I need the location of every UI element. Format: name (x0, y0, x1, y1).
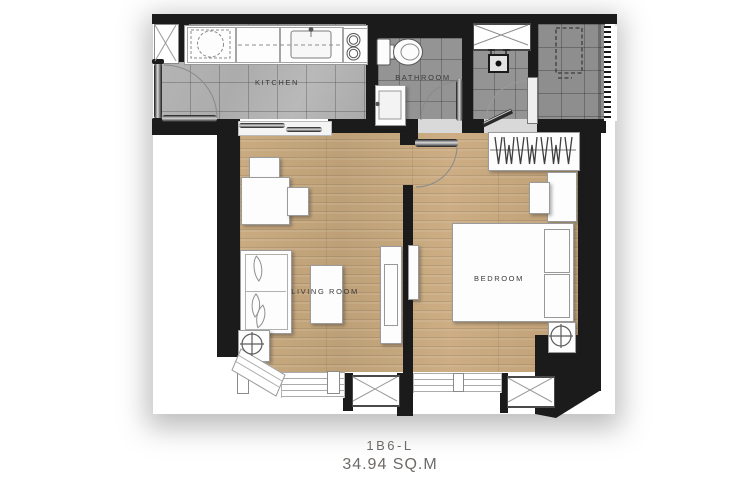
bedroom-chair (529, 182, 550, 214)
bedroom-wall-tv (408, 245, 419, 300)
title-block: 1B6-L 34.94 SQ.M (280, 438, 500, 474)
floor-plan: KITCHEN BATHROOM LIVING ROOM BEDROOM 1B6… (0, 0, 750, 500)
vanity-sink (375, 85, 406, 126)
bedroom-door-leaf (415, 139, 458, 147)
kitchen-sliding-door-panel-2 (286, 127, 322, 132)
pillow-top (544, 229, 570, 273)
ac-ledge-edge-line (598, 24, 601, 124)
living-window-unit (352, 375, 400, 407)
wall-bath-shower-divider (462, 24, 473, 121)
sofa-cushion-divider (245, 291, 286, 292)
stove (342, 28, 368, 63)
kitchen-sink-unit (280, 27, 344, 63)
shower-floor (473, 47, 528, 121)
kitchen-cabinet (236, 27, 280, 63)
living-tv (384, 264, 398, 326)
bathroom-door-threshold (418, 119, 462, 133)
wall-left (217, 131, 240, 357)
dining-table (241, 177, 290, 225)
bathroom-label: BATHROOM (383, 73, 463, 82)
pillow-bottom (544, 274, 570, 318)
ac-ledge-floor (538, 24, 605, 124)
dining-chair-right (287, 187, 309, 216)
bedroom-desk (547, 172, 577, 222)
bedroom-label: BEDROOM (459, 274, 539, 283)
wall-shower-bottom (462, 119, 484, 133)
bedroom-side-table (548, 322, 576, 353)
shower-window (473, 23, 531, 51)
unit-area: 34.94 SQ.M (280, 456, 500, 474)
entry-side-panel (154, 24, 179, 64)
bedroom-window-unit (507, 376, 555, 408)
entry-door-leaf (154, 63, 162, 119)
unit-name: 1B6-L (280, 438, 500, 453)
living-side-table (238, 330, 270, 362)
wall-top (152, 14, 617, 24)
wardrobe (488, 132, 580, 171)
window-post-corner (237, 367, 249, 394)
entry-door-hinge-cap-top (152, 59, 164, 64)
kitchen-label: KITCHEN (237, 78, 317, 87)
kitchen-sliding-door-panel-1 (239, 123, 285, 128)
wall-bath-top (366, 24, 474, 38)
washing-machine (187, 27, 236, 63)
sofa-cushion-frame (245, 254, 288, 330)
living-room-label: LIVING ROOM (285, 287, 365, 296)
bathroom-door-leaf (456, 79, 463, 121)
entry-door-leaf-open (162, 115, 217, 122)
window-post-living (327, 371, 340, 394)
window-post-bedroom (453, 373, 464, 392)
shower-door-jamb (527, 77, 538, 124)
ac-louver-grille (604, 26, 617, 121)
